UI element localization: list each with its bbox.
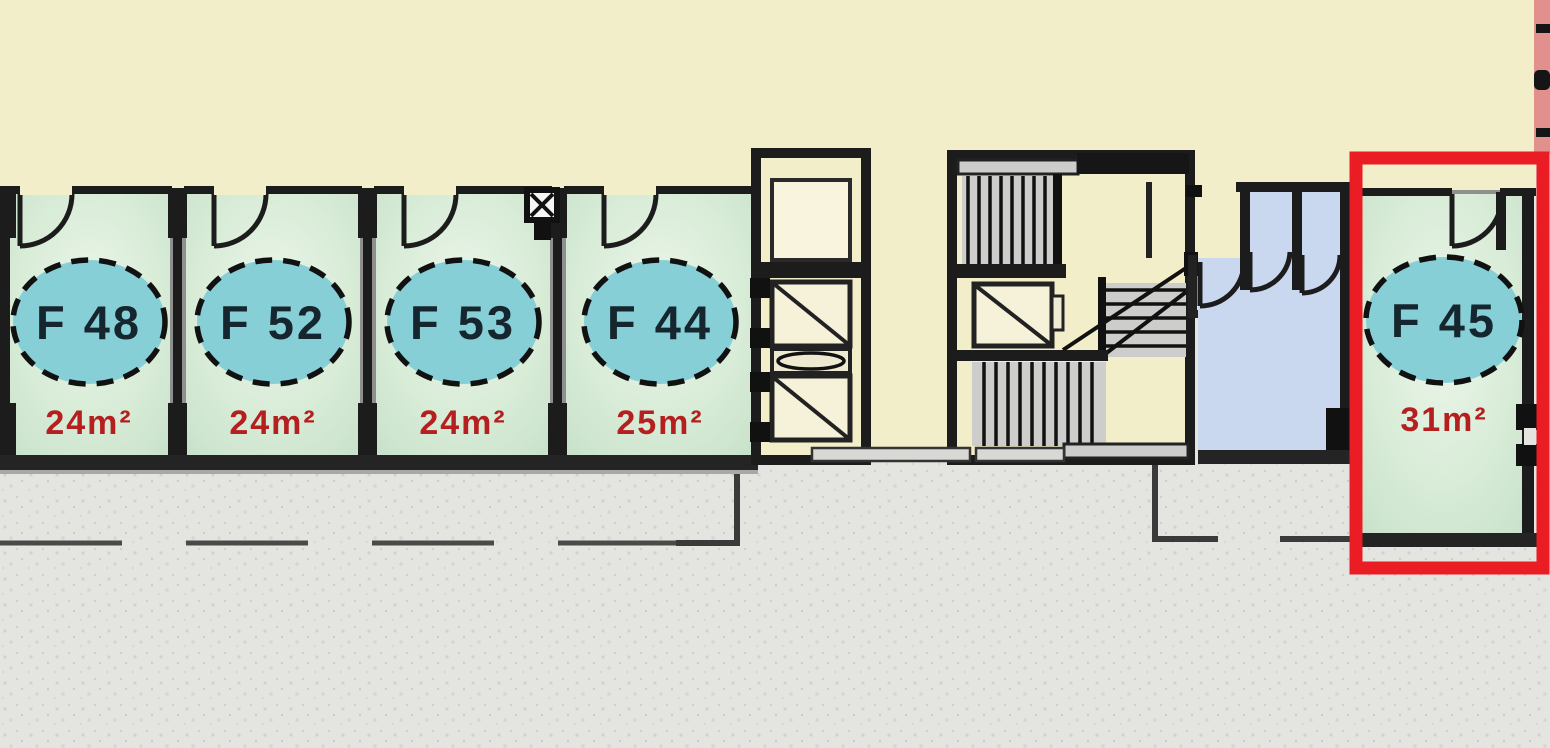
unit-f48-area: 24m² — [45, 404, 132, 442]
unit-f48-label: F 48 — [36, 296, 142, 349]
unit-f48[interactable]: F 48 24m² — [6, 192, 172, 458]
unit-f44[interactable]: F 44 25m² — [564, 192, 756, 458]
unit-f45-area: 31m² — [1400, 401, 1487, 439]
unit-f53-label: F 53 — [410, 296, 516, 349]
entry-hall — [860, 155, 956, 460]
stair-landing-bottom — [1064, 444, 1188, 458]
unit-f44-area: 25m² — [616, 404, 703, 442]
unit-f45-label: F 45 — [1391, 294, 1497, 347]
unit-f53-area: 24m² — [419, 404, 506, 442]
floor-plan-viewport: F 48 24m² F 52 24m² F 53 24m² F 44 25m² — [0, 0, 1550, 748]
vestibule — [1188, 188, 1244, 260]
stair-landing — [958, 160, 1078, 174]
unit-f45[interactable]: F 45 31m² — [1352, 188, 1538, 547]
stair-flight-upper — [962, 176, 1054, 264]
adjacent-building-strip — [1534, 0, 1550, 153]
unit-f53[interactable]: F 53 24m² — [374, 192, 552, 458]
machine-room — [772, 180, 850, 260]
stair-elevator-door — [1052, 296, 1063, 330]
unit-f52-label: F 52 — [220, 296, 326, 349]
stairwell-block — [952, 153, 1206, 460]
floor-plan-canvas: F 48 24m² F 52 24m² F 53 24m² F 44 25m² — [0, 0, 1550, 748]
unit-f52-area: 24m² — [229, 404, 316, 442]
entry-threshold — [812, 448, 970, 461]
entry-threshold — [976, 448, 1064, 461]
elevator-block — [750, 153, 866, 460]
unit-f52[interactable]: F 52 24m² — [184, 192, 362, 458]
stair-flight-lower — [972, 362, 1106, 446]
unit-f44-label: F 44 — [607, 296, 713, 349]
